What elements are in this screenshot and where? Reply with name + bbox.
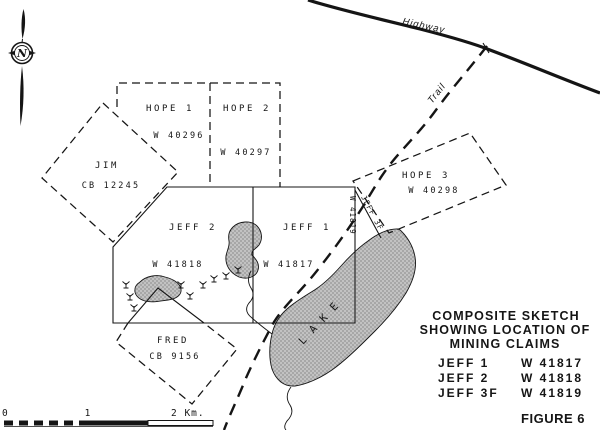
legend: COMPOSITE SKETCH SHOWING LOCATION OF MIN…: [420, 309, 591, 426]
mining-claims-sketch-map: N 0 1 2 Km. HOPE 1 W 40296 HOPE 2 W 4029…: [0, 0, 600, 430]
fred-name: FRED: [157, 336, 189, 346]
scale-zero: 0: [2, 408, 9, 419]
legend-entry-claim: JEFF 1: [438, 356, 489, 370]
north-arrow-icon: N: [8, 9, 36, 126]
hope3-name: HOPE 3: [402, 171, 450, 181]
jeff3f-number-rotated: W 41819: [348, 196, 357, 235]
hope1-name: HOPE 1: [146, 104, 194, 114]
legend-entry-claim: JEFF 3F: [438, 386, 499, 400]
figure-number-label: FIGURE 6: [521, 411, 585, 426]
hope1-number: W 40296: [153, 131, 204, 141]
jeff2-name: JEFF 2: [169, 223, 217, 233]
legend-entry-number: W 41818: [521, 371, 583, 385]
jeff3f-name-rotated: JEFF 3F: [359, 194, 385, 232]
jeff2-number: W 41818: [152, 260, 203, 270]
fred-number: CB 9156: [149, 352, 200, 362]
jim-number: CB 12245: [82, 181, 141, 191]
legend-title-line2: SHOWING LOCATION OF: [420, 323, 591, 337]
outcrop-shape: [226, 222, 262, 278]
stream-line-upper: [247, 271, 272, 334]
highway-label: Highway: [401, 16, 446, 36]
highway-line: [308, 0, 600, 93]
scale-bar: 0 1 2 Km.: [2, 408, 213, 427]
stream-line-outlet: [285, 387, 292, 430]
legend-entry-number: W 41819: [521, 386, 583, 400]
scale-two-km: 2 Km.: [171, 408, 205, 419]
hope2-name: HOPE 2: [223, 104, 271, 114]
scale-one: 1: [85, 408, 92, 419]
legend-entry-number: W 41817: [521, 356, 583, 370]
jeff1-name: JEFF 1: [283, 223, 331, 233]
hope2-number: W 40297: [220, 148, 271, 158]
legend-title-line3: MINING CLAIMS: [450, 337, 561, 351]
hope3-number: W 40298: [408, 186, 459, 196]
legend-entry-claim: JEFF 2: [438, 371, 489, 385]
legend-title-line1: COMPOSITE SKETCH: [432, 309, 579, 323]
trail-label: Trail: [426, 81, 449, 106]
jeff1-number: W 41817: [263, 260, 314, 270]
north-label: N: [16, 47, 28, 60]
jim-outline: [42, 103, 178, 242]
lake-shape: [270, 229, 416, 386]
jim-name: JIM: [95, 161, 119, 171]
